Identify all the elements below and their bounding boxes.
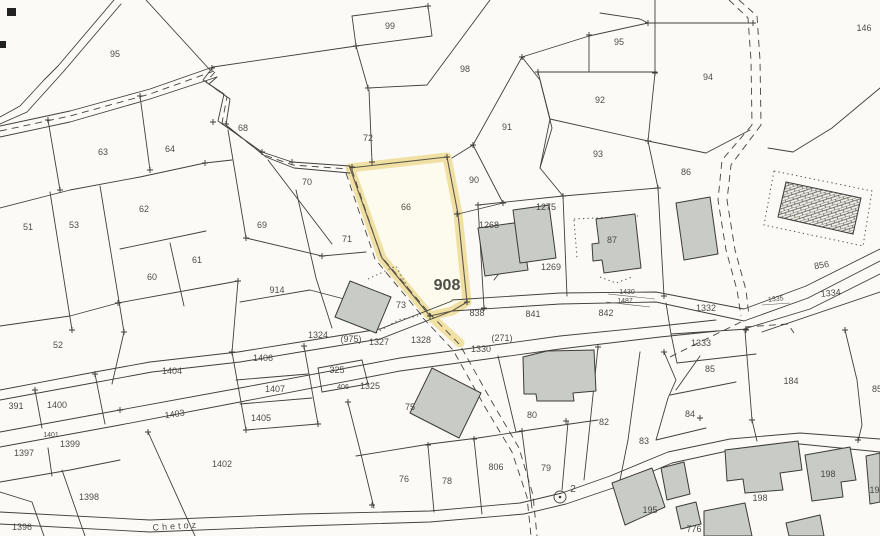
- parcel-label-841: 841: [525, 309, 540, 319]
- parcel-label-71: 71: [342, 234, 352, 244]
- survey-tick: [655, 185, 661, 191]
- parcel-label-1335: 1335: [768, 295, 784, 304]
- parcel-label-1400: 1400: [47, 400, 67, 410]
- parcel-label-1269: 1269: [541, 262, 561, 272]
- parcel-label-52: 52: [53, 340, 63, 350]
- parcel-label-198: 198: [752, 493, 767, 503]
- parcel-label-91: 91: [502, 122, 512, 132]
- survey-tick: [147, 167, 153, 173]
- survey-tick: [661, 349, 667, 355]
- parcel-label-1404: 1404: [162, 366, 182, 376]
- survey-tick: [652, 70, 658, 76]
- parcel-label-64: 64: [165, 144, 175, 154]
- parcel-label-51: 51: [23, 222, 33, 232]
- survey-tick: [365, 85, 371, 91]
- survey-tick: [645, 20, 651, 26]
- hatched-building: [778, 182, 861, 234]
- parcel-label-1487: 1487: [617, 298, 633, 305]
- survey-tick: [117, 407, 123, 413]
- parcel-label-1401: 1401: [43, 432, 59, 439]
- survey-tick: [45, 117, 51, 123]
- parcel-label-83: 83: [639, 436, 649, 446]
- parcel-label-914: 914: [269, 285, 284, 295]
- parcel-label-1333: 1333: [691, 338, 711, 348]
- parcel-label-72: 72: [363, 133, 373, 143]
- parcel-label-93: 93: [593, 149, 603, 159]
- parcel-label-69: 69: [257, 220, 267, 230]
- parcel-label-82: 82: [599, 417, 609, 427]
- parcel-label-61: 61: [192, 255, 202, 265]
- parcel-label-1405: 1405: [251, 413, 271, 423]
- parcel-label-1398: 1398: [79, 492, 99, 502]
- parcel-label-70: 70: [302, 177, 312, 187]
- survey-tick: [243, 427, 249, 433]
- parcel-label-1396: 1396: [12, 522, 32, 532]
- parcel-label-75: 75: [405, 402, 415, 412]
- parcel-label-325: 325: [329, 365, 344, 375]
- parcel-label-199: 199: [869, 485, 880, 495]
- parcel-label-90: 90: [469, 175, 479, 185]
- parcel-label-146: 146: [856, 23, 871, 33]
- cadastral-map-viewport[interactable]: 9599989594146929193728663646870696651536…: [0, 0, 880, 536]
- parcel-label-86: 86: [681, 167, 691, 177]
- parcel-label-92: 92: [595, 95, 605, 105]
- survey-tick: [145, 429, 151, 435]
- parcel-label-99: 99: [385, 21, 395, 31]
- parcel-label-198: 198: [820, 469, 835, 479]
- survey-tick: [315, 421, 321, 427]
- survey-tick: [235, 278, 241, 284]
- parcel-label-1328: 1328: [411, 335, 431, 345]
- parcel-label-195: 195: [642, 505, 657, 515]
- parcel-label-1325: 1325: [360, 381, 380, 391]
- parcel-label-87: 87: [607, 235, 617, 245]
- parcel-label-1275: 1275: [536, 202, 556, 212]
- parcel-label-68: 68: [238, 123, 248, 133]
- parcel-label-76: 76: [399, 474, 409, 484]
- survey-tick: [319, 253, 325, 259]
- parcel-label-2: 2: [570, 484, 576, 495]
- parcel-label-1397: 1397: [14, 448, 34, 458]
- parcel-label-1399: 1399: [60, 439, 80, 449]
- parcel-label-95: 95: [614, 37, 624, 47]
- parcel-label-1334: 1334: [820, 287, 841, 299]
- survey-point-2: [554, 491, 566, 503]
- parcel-label-184: 184: [783, 376, 798, 386]
- survey-tick: [223, 121, 229, 127]
- scan-artifact: [0, 41, 6, 48]
- survey-tick: [470, 142, 476, 148]
- parcel-label-1406: 1406: [253, 353, 273, 363]
- parcel-label-85: 85: [705, 364, 715, 374]
- survey-tick: [210, 119, 216, 125]
- parcel-label-1330: 1330: [471, 344, 491, 354]
- parcel-label-908: 908: [434, 277, 461, 294]
- parcel-label-94: 94: [703, 72, 713, 82]
- survey-tick: [425, 442, 431, 448]
- survey-tick: [229, 349, 235, 355]
- survey-tick: [137, 93, 143, 99]
- parcel-label-975: (975): [340, 334, 361, 344]
- parcel-label-79: 79: [541, 463, 551, 473]
- parcel-label-66: 66: [401, 202, 411, 212]
- survey-tick: [749, 417, 755, 423]
- parcel-label-85: 85: [872, 384, 880, 394]
- parcel-label-391: 391: [8, 401, 23, 411]
- parcel-label-63: 63: [98, 147, 108, 157]
- survey-tick: [115, 300, 121, 306]
- survey-tick: [353, 43, 359, 49]
- parcel-label-1332: 1332: [696, 303, 716, 313]
- parcel-label-406: 406: [337, 384, 349, 391]
- survey-tick: [471, 436, 477, 442]
- parcel-label-1327: 1327: [369, 337, 389, 347]
- survey-tick: [32, 387, 38, 393]
- survey-tick: [69, 327, 75, 333]
- survey-tick: [121, 329, 127, 335]
- survey-tick: [301, 343, 307, 349]
- parcel-label-1402: 1402: [212, 459, 232, 469]
- survey-tick: [697, 415, 703, 421]
- parcel-label-1268: 1268: [479, 220, 499, 230]
- parcel-label-806: 806: [488, 462, 503, 472]
- parcel-label-1430: 1430: [619, 289, 635, 296]
- scan-artifact: [7, 8, 16, 16]
- parcel-label-98: 98: [460, 64, 470, 74]
- parcel-label-1403: 1403: [164, 408, 185, 421]
- parcel-label-95: 95: [110, 49, 120, 59]
- parcel-label-73: 73: [396, 300, 406, 310]
- parcel-label-78: 78: [442, 476, 452, 486]
- parcel-label-776: 776: [686, 524, 701, 534]
- parcel-label-60: 60: [147, 272, 157, 282]
- parcel-label-53: 53: [69, 220, 79, 230]
- survey-tick: [243, 235, 249, 241]
- survey-tick: [500, 200, 506, 206]
- parcel-label-62: 62: [139, 204, 149, 214]
- parcel-label-838: 838: [469, 308, 484, 318]
- survey-tick: [475, 202, 481, 208]
- survey-tick: [750, 20, 756, 26]
- survey-tick: [645, 138, 651, 144]
- survey-tick: [842, 327, 848, 333]
- parcel-label-1324: 1324: [308, 330, 328, 340]
- survey-tick: [202, 160, 208, 166]
- survey-tick: [345, 399, 351, 405]
- survey-tick: [259, 149, 265, 155]
- parcel-label-1407: 1407: [265, 384, 285, 394]
- survey-tick: [519, 428, 525, 434]
- survey-tick: [425, 3, 431, 9]
- parcel-label-856: 856: [813, 259, 829, 271]
- parcel-label-271: (271): [491, 333, 512, 343]
- cadastral-map[interactable]: 9599989594146929193728663646870696651536…: [0, 0, 880, 536]
- parcel-label-84: 84: [685, 409, 695, 419]
- parcel-label-842: 842: [598, 308, 613, 318]
- parcel-label-80: 80: [527, 410, 537, 420]
